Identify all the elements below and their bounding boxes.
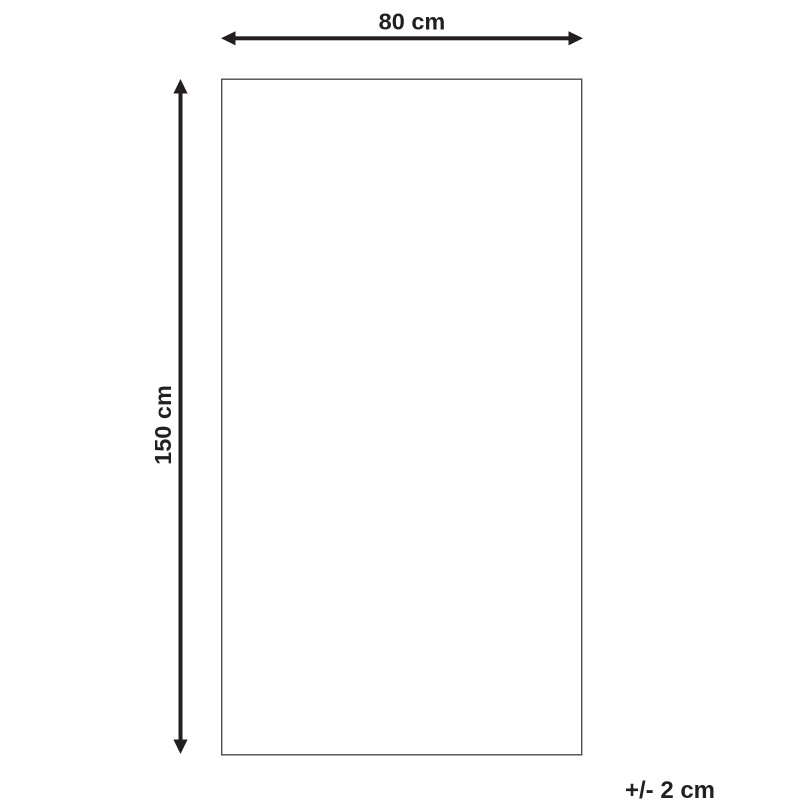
svg-text:80 cm: 80 cm bbox=[379, 9, 446, 35]
svg-text:+/- 2 cm: +/- 2 cm bbox=[625, 777, 715, 800]
svg-text:150 cm: 150 cm bbox=[150, 385, 176, 465]
